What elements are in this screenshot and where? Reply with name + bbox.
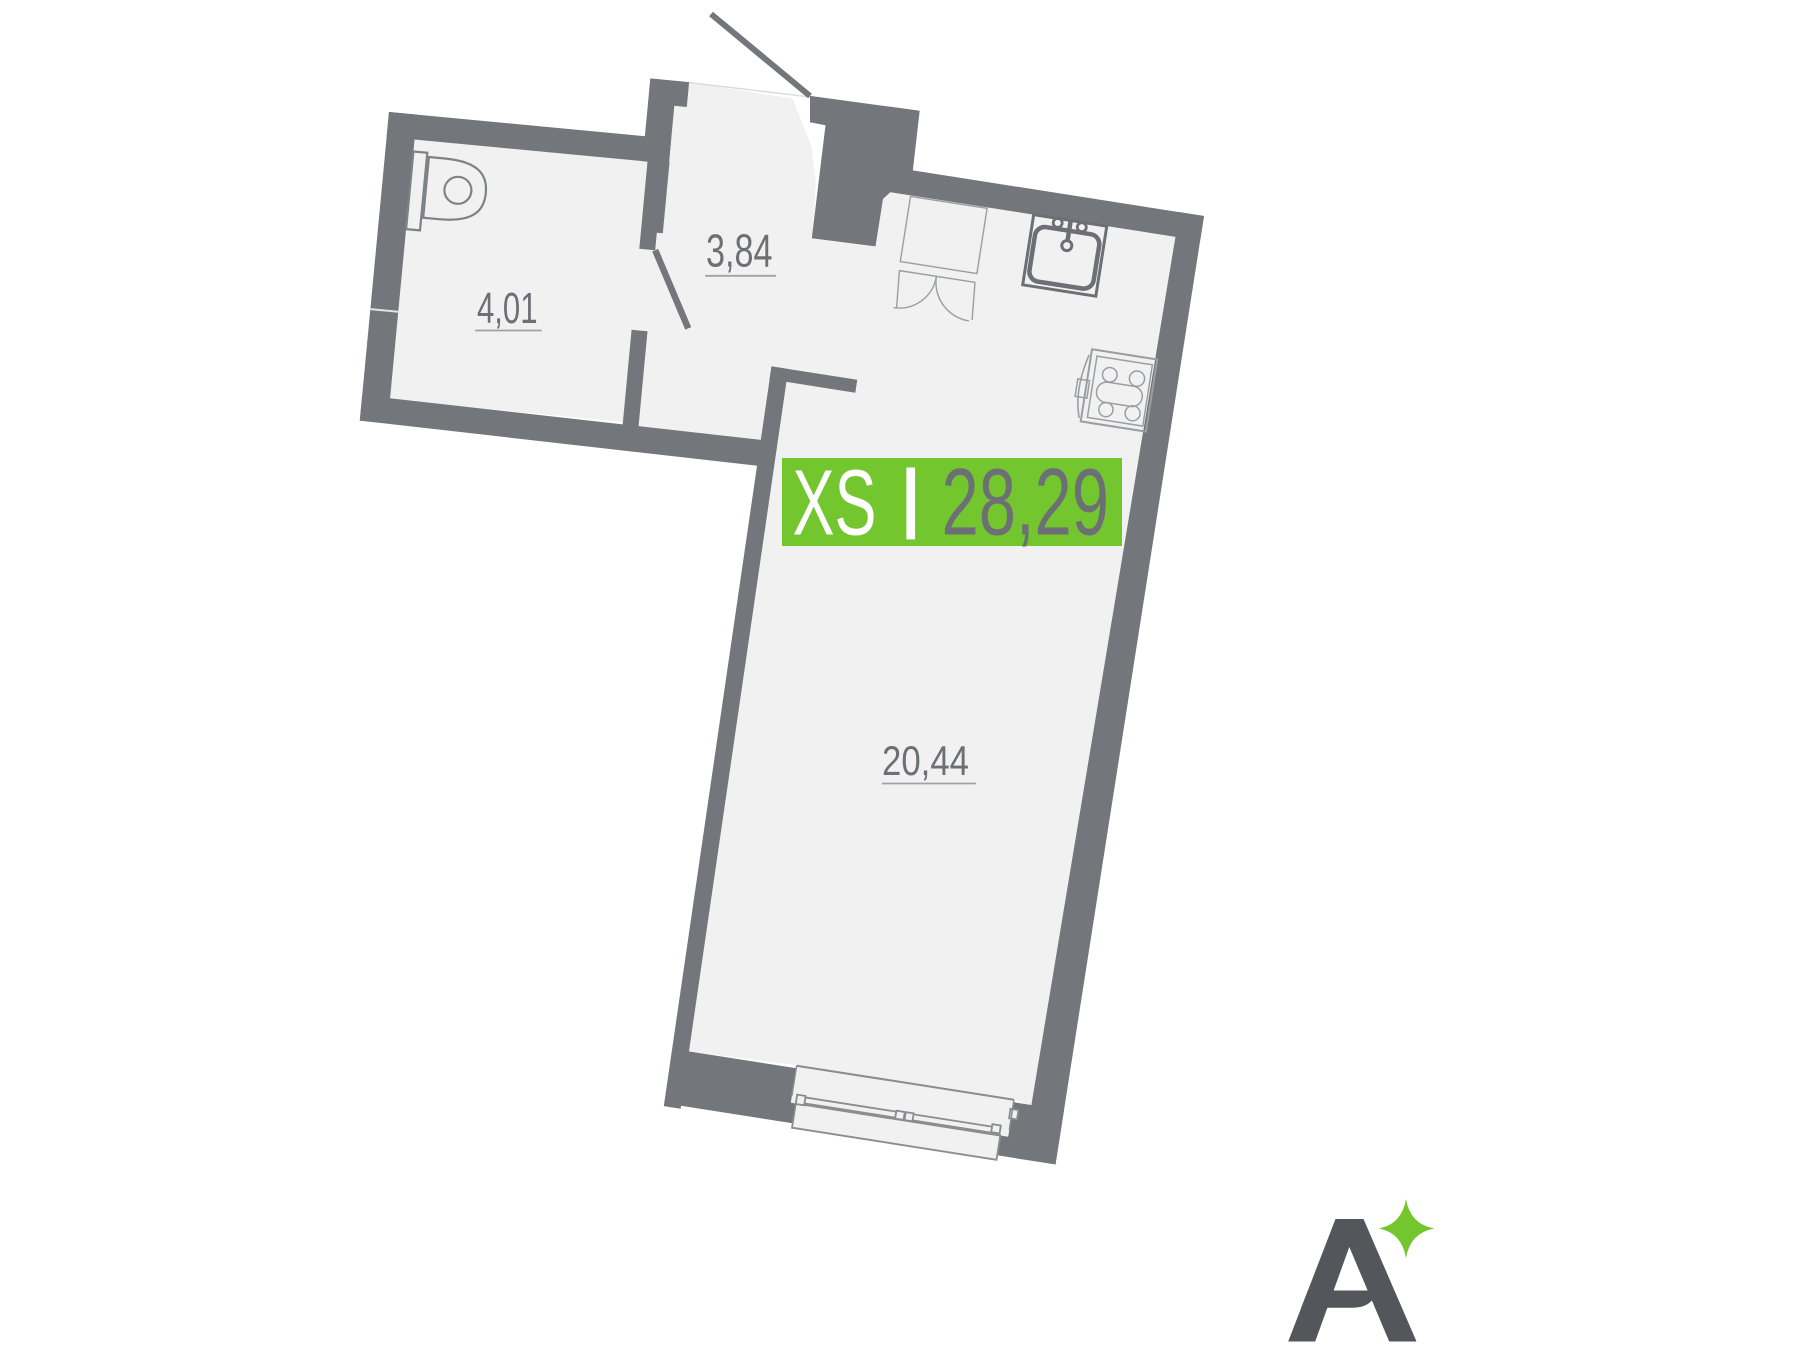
svg-text:20,44: 20,44 — [882, 737, 969, 784]
svg-text:4,01: 4,01 — [477, 284, 538, 333]
svg-text:XS: XS — [793, 451, 877, 555]
svg-text:3,84: 3,84 — [706, 225, 773, 277]
svg-text:28,29: 28,29 — [942, 450, 1110, 556]
